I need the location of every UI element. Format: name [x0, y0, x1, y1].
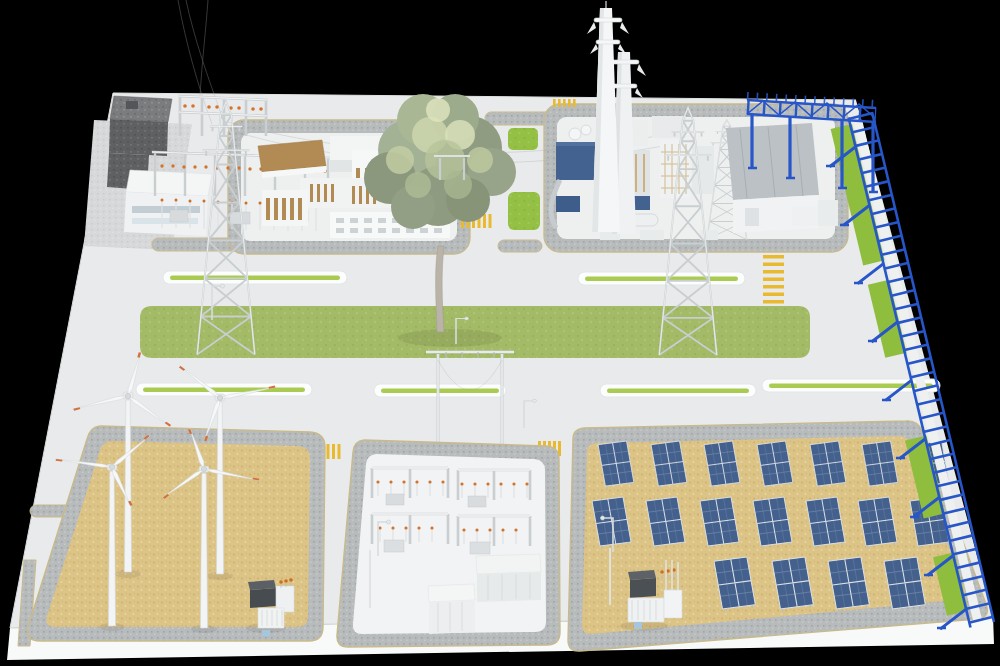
- road-median-strip: [498, 240, 542, 252]
- planter-pill: [600, 384, 756, 397]
- concrete-hall-roof: [110, 96, 172, 122]
- hall-door: [745, 208, 759, 226]
- green-patch: [508, 192, 540, 230]
- boiler-unit: [556, 146, 596, 180]
- switchyard-south[interactable]: [337, 440, 560, 647]
- concrete-hall-front: [109, 119, 168, 156]
- planter-pill: [578, 272, 745, 285]
- silo: [581, 125, 591, 135]
- control-building-front: [124, 192, 208, 236]
- planter-pill: [374, 384, 506, 397]
- planter-pill: [163, 271, 347, 284]
- tree-shadow: [398, 329, 502, 347]
- plant-block: [640, 230, 664, 240]
- service-building: [428, 584, 475, 634]
- scene-canvas: [0, 0, 1000, 666]
- energy-park-scene: [0, 0, 1000, 666]
- green-patch: [508, 128, 538, 150]
- grey-roof: [726, 123, 819, 200]
- service-building: [476, 554, 541, 602]
- rooftop-unit: [126, 101, 138, 109]
- plant-block: [792, 206, 818, 226]
- silo: [569, 128, 581, 140]
- plant-block: [818, 200, 838, 226]
- plant-block-blue: [556, 196, 580, 212]
- control-building-roof: [126, 170, 212, 196]
